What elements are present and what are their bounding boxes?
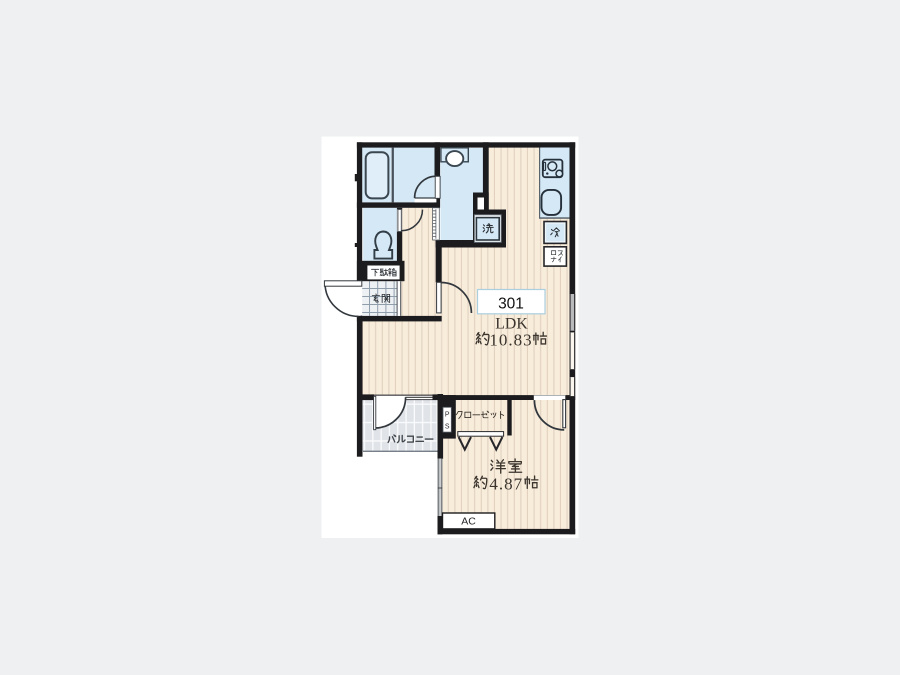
svg-text:AC: AC (461, 516, 476, 528)
svg-text:P: P (445, 412, 450, 419)
svg-text:301: 301 (498, 295, 524, 312)
svg-text:10.83: 10.83 (489, 330, 532, 349)
svg-text:4.87: 4.87 (489, 474, 523, 493)
svg-text:S: S (445, 424, 450, 431)
